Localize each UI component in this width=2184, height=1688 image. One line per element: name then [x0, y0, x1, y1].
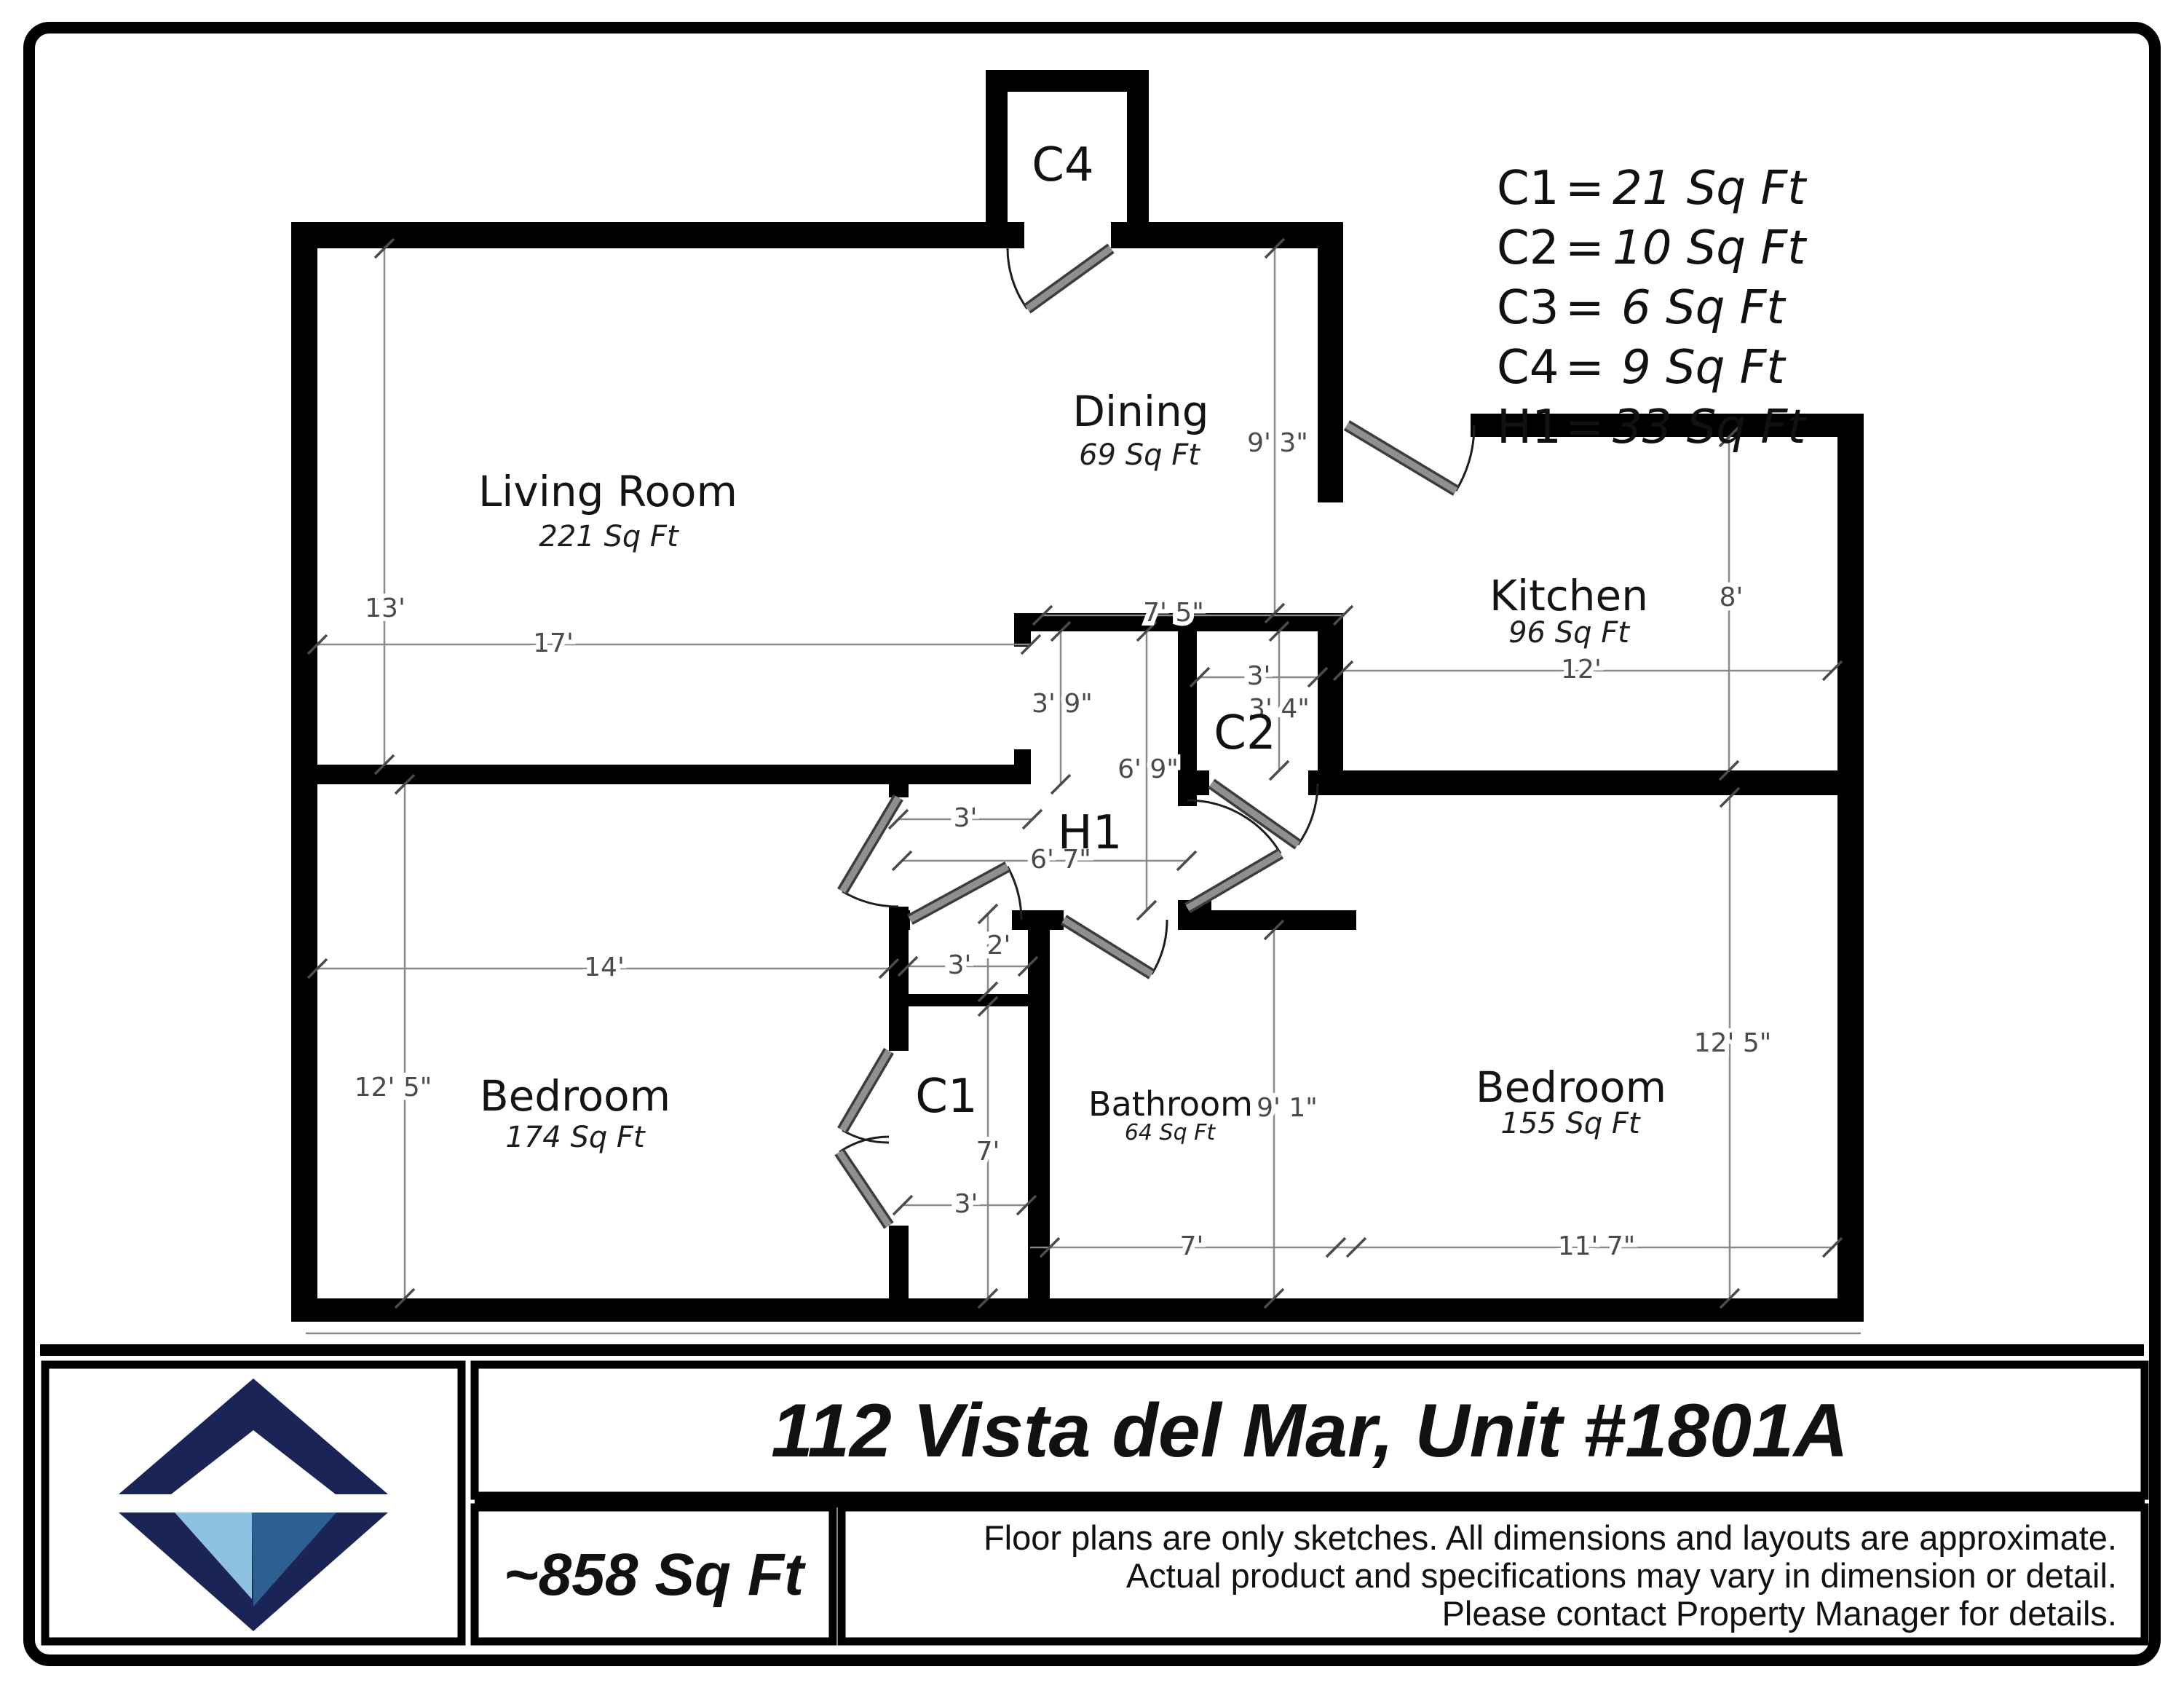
footer-divider: [40, 1344, 2144, 1356]
legend-equals: =: [1565, 162, 1605, 216]
legend-row: C1 = 21 Sq Ft: [1497, 162, 1808, 216]
legend-code: C3: [1497, 281, 1559, 335]
legend-row: H1 = 33 Sq Ft: [1497, 401, 1808, 454]
floor-plan-page: 13' 17' 9' 3" 7' 5" 8' 12' 3' 3' 4" 3' 9…: [0, 0, 2184, 1688]
disclaimer-line-3: Please contact Property Manager for deta…: [1442, 1594, 2117, 1633]
room-label-bedroom-right: Bedroom: [1476, 1062, 1666, 1112]
door-c2: [1211, 784, 1318, 845]
legend-row: C3 = 6 Sq Ft: [1497, 281, 1787, 335]
dim-kitchen-width: 12': [1561, 655, 1602, 685]
dim-bath-height: 9' 1": [1257, 1093, 1318, 1123]
address-title: 112 Vista del Mar, Unit #1801A: [771, 1389, 1848, 1473]
door-bedroom-left: [842, 797, 898, 907]
dim-c3-height: 2': [987, 931, 1011, 961]
legend-equals: =: [1565, 401, 1605, 454]
legend-value: 9 Sq Ft: [1621, 341, 1787, 395]
dim-living-width: 17': [533, 628, 574, 658]
legend-equals: =: [1565, 341, 1605, 395]
dim-c2-width: 3': [1247, 661, 1271, 691]
legend-equals: =: [1565, 221, 1605, 275]
dim-c1-bottom: 3': [954, 1189, 978, 1219]
room-area-living-room: 221 Sq Ft: [539, 520, 679, 553]
room-area-bedroom-right: 155 Sq Ft: [1500, 1107, 1641, 1140]
space-label-h1: H1: [1058, 806, 1123, 860]
room-labels: Living Room 221 Sq Ft Dining 69 Sq Ft Ki…: [478, 138, 1666, 1154]
door-bathroom: [1064, 920, 1167, 974]
room-label-bathroom: Bathroom: [1088, 1084, 1253, 1124]
legend-equals: =: [1565, 281, 1605, 335]
legend: C1 = 21 Sq Ft C2 = 10 Sq Ft C3 = 6 Sq Ft…: [1497, 162, 1808, 454]
space-label-c4: C4: [1032, 138, 1093, 192]
door-c3-nook: [910, 867, 1021, 920]
dim-living-height: 13': [365, 593, 405, 623]
room-area-kitchen: 96 Sq Ft: [1508, 616, 1630, 650]
door-c4: [1008, 248, 1111, 309]
footer: 112 Vista del Mar, Unit #1801A ~858 Sq F…: [40, 1344, 2145, 1641]
legend-value: 10 Sq Ft: [1613, 221, 1808, 275]
room-label-kitchen: Kitchen: [1489, 571, 1648, 620]
legend-row: C2 = 10 Sq Ft: [1497, 221, 1808, 275]
room-label-living-room: Living Room: [478, 467, 737, 516]
legend-code: C1: [1497, 162, 1559, 216]
legend-value: 21 Sq Ft: [1613, 162, 1808, 216]
space-label-c2: C2: [1214, 706, 1275, 760]
dim-h1-passage: 3': [954, 803, 978, 833]
dim-kitchen-height: 8': [1720, 583, 1744, 612]
dim-h1-height: 6' 9": [1117, 754, 1179, 784]
dim-bed-right-height: 12' 5": [1694, 1028, 1772, 1058]
disclaimer-line-1: Floor plans are only sketches. All dimen…: [984, 1518, 2117, 1557]
legend-code: H1: [1497, 401, 1562, 454]
dim-c3-width: 3': [948, 950, 972, 980]
space-label-c1: C1: [915, 1070, 977, 1124]
dim-h1-upper: 3' 9": [1032, 689, 1093, 719]
dim-bath-width: 7': [1180, 1231, 1204, 1261]
dim-c1-height: 7': [976, 1137, 1000, 1167]
dim-bed-right-width: 11' 7": [1558, 1231, 1636, 1261]
legend-code: C2: [1497, 221, 1559, 275]
legend-value: 6 Sq Ft: [1621, 281, 1787, 335]
room-label-bedroom-left: Bedroom: [480, 1071, 670, 1121]
legend-row: C4 = 9 Sq Ft: [1497, 341, 1787, 395]
total-area-value: ~858 Sq Ft: [504, 1542, 807, 1608]
room-label-dining: Dining: [1072, 387, 1208, 436]
floor-plan-canvas: 13' 17' 9' 3" 7' 5" 8' 12' 3' 3' 4" 3' 9…: [0, 0, 2184, 1688]
door-c1-lower: [839, 1137, 889, 1226]
disclaimer-line-2: Actual product and specifications may va…: [1126, 1556, 2117, 1595]
room-area-bathroom: 64 Sq Ft: [1125, 1120, 1216, 1145]
legend-value: 33 Sq Ft: [1613, 401, 1808, 454]
door-c1-upper: [842, 1051, 889, 1143]
room-area-bedroom-left: 174 Sq Ft: [505, 1121, 646, 1154]
door-entry: [1347, 425, 1474, 491]
room-area-dining: 69 Sq Ft: [1079, 438, 1200, 472]
dim-bed-left-height: 12' 5": [355, 1073, 432, 1103]
dim-dining-width: 7' 5": [1143, 598, 1204, 628]
dim-bed-left-width: 14': [584, 953, 625, 982]
legend-code: C4: [1497, 341, 1559, 395]
dim-dining-height: 9' 3": [1247, 428, 1308, 458]
